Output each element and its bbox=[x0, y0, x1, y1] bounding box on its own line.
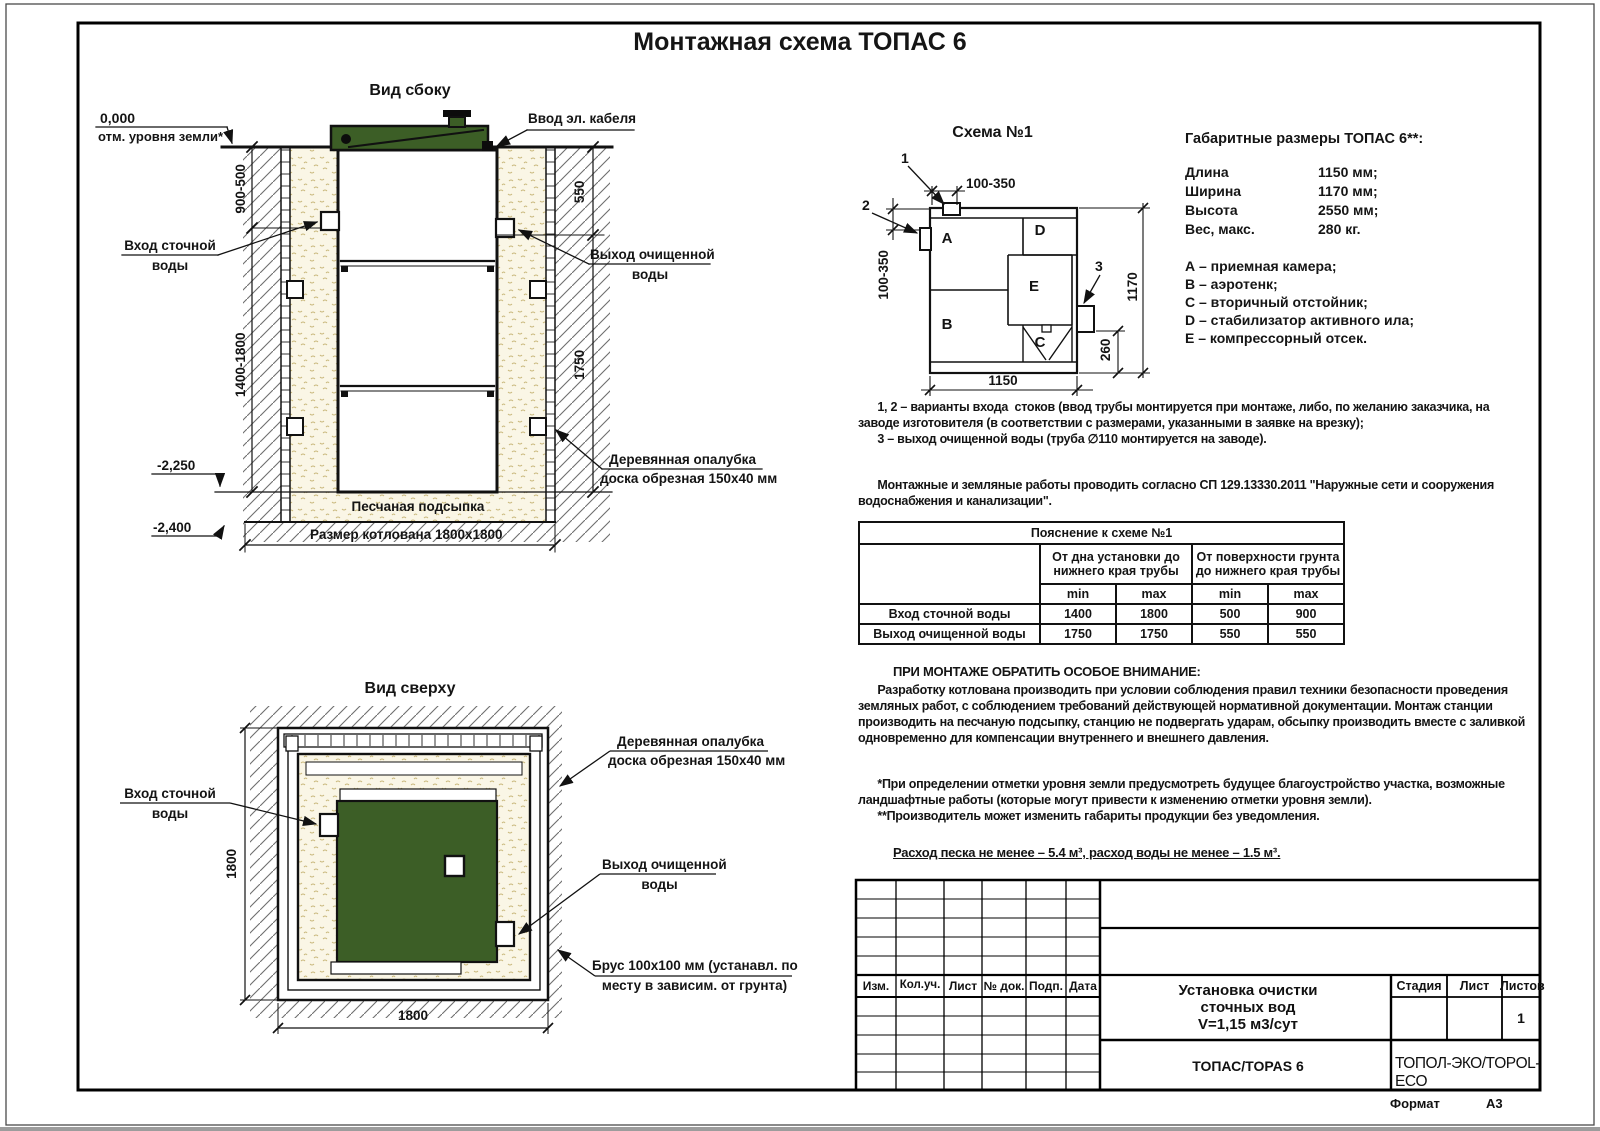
table-group2-header: От поверхности грунта до нижнего края тр… bbox=[1192, 544, 1344, 584]
attention-body: Разработку котлована производить при усл… bbox=[858, 682, 1525, 746]
compartment-c: C bbox=[1030, 334, 1050, 351]
scheme-dim-right: 1170 bbox=[1125, 257, 1141, 317]
side-view-title: Вид сбоку bbox=[330, 82, 490, 101]
table-min-header: min bbox=[1040, 584, 1116, 604]
row-label: Выход очищенной воды bbox=[859, 624, 1040, 644]
table-corner-cell bbox=[859, 544, 1040, 604]
dim-1800-bottom: 1800 bbox=[383, 1008, 443, 1024]
scheme-dim-top: 100-350 bbox=[966, 176, 1016, 192]
vent-stem-icon bbox=[449, 117, 465, 127]
row-value: 550 bbox=[1268, 624, 1344, 644]
pit-size-label: Размер котлована 1800х1800 bbox=[310, 527, 490, 543]
lid-edge-strip bbox=[340, 789, 496, 801]
formwork-label-line2: доска обрезная 150х40 мм bbox=[600, 471, 765, 487]
dim-depth-top: 900-500 bbox=[233, 154, 249, 224]
legend-item: В – аэротенк; bbox=[1185, 276, 1278, 292]
compartment-a: A bbox=[937, 230, 957, 247]
tb-project-name: Установка очистки сточных вод V=1,15 м3/… bbox=[1105, 982, 1391, 1033]
tb-col-ndok: № док. bbox=[982, 979, 1026, 993]
row-value: 900 bbox=[1268, 604, 1344, 624]
dim-550: 550 bbox=[572, 162, 588, 222]
inlet-nozzle bbox=[321, 212, 339, 230]
scheme-outlet-stub-3 bbox=[1077, 306, 1094, 332]
tb-stage-header: Стадия bbox=[1391, 979, 1447, 993]
dim-depth-bottom: 1400-1800 bbox=[233, 322, 249, 408]
inlet-nozzle bbox=[320, 814, 338, 836]
tb-col-podp: Подп. bbox=[1026, 979, 1066, 993]
tank-lid-top bbox=[337, 801, 497, 962]
scheme-title: Схема №1 bbox=[925, 124, 1060, 143]
tb-sheet-header: Лист bbox=[1447, 979, 1502, 993]
dim-1800-left: 1800 bbox=[224, 834, 240, 894]
spec-label: Вес, макс. bbox=[1185, 221, 1318, 240]
row-value: 1750 bbox=[1116, 624, 1192, 644]
drawing-sheet: Монтажная схема ТОПАС 6 Вид сбоку 0,000 … bbox=[0, 0, 1600, 1131]
spec-row: Высота2550 мм; bbox=[1185, 202, 1378, 221]
level-zero-mark: 0,000 bbox=[100, 110, 135, 126]
format-label: Формат bbox=[1390, 1096, 1440, 1111]
outlet-nozzle bbox=[496, 922, 514, 946]
lid-hatch-square bbox=[445, 856, 464, 876]
legend-item: А – приемная камера; bbox=[1185, 258, 1336, 274]
tank-body bbox=[338, 150, 497, 492]
scheme-dim-260: 260 bbox=[1098, 325, 1114, 375]
tb-sheets-value: 1 bbox=[1502, 1010, 1540, 1026]
top-view-title: Вид сверху bbox=[330, 680, 490, 699]
scheme-marker-1: 1 bbox=[901, 150, 909, 166]
page-title: Монтажная схема ТОПАС 6 bbox=[400, 28, 1200, 57]
table-max-header: max bbox=[1116, 584, 1192, 604]
spec-row: Ширина1170 мм; bbox=[1185, 183, 1378, 202]
level-2400-mark: -2,400 bbox=[153, 520, 191, 536]
cable-entry-label: Ввод эл. кабеля bbox=[528, 111, 634, 127]
scheme-marker-3: 3 bbox=[1095, 258, 1103, 274]
specs-heading: Габаритные размеры ТОПАС 6**: bbox=[1185, 131, 1423, 148]
legend-item: Е – компрессорный отсек. bbox=[1185, 330, 1367, 346]
format-value: А3 bbox=[1486, 1096, 1503, 1111]
spec-row: Длина1150 мм; bbox=[1185, 164, 1378, 183]
table-title: Пояснение к схеме №1 bbox=[859, 522, 1344, 544]
consumption-note: Расход песка не менее – 5.4 м³, расход в… bbox=[893, 845, 1280, 861]
compartment-b: B bbox=[937, 316, 957, 333]
row-value: 1750 bbox=[1040, 624, 1116, 644]
inlet-label-line1: Вход сточной bbox=[122, 238, 218, 254]
scheme-explanation-table: Пояснение к схеме №1 От дна установки до… bbox=[858, 521, 1345, 645]
attention-title: ПРИ МОНТАЖЕ ОБРАТИТЬ ОСОБОЕ ВНИМАНИЕ: bbox=[893, 664, 1201, 680]
inlet-label-line1: Вход сточной bbox=[122, 786, 218, 802]
row-value: 550 bbox=[1192, 624, 1268, 644]
formwork-label-line1: Деревянная опалубка bbox=[608, 734, 773, 750]
table-group1-header: От дна установки до нижнего края трубы bbox=[1040, 544, 1192, 584]
spec-value: 2550 мм; bbox=[1318, 202, 1378, 221]
dim-1750: 1750 bbox=[572, 335, 588, 395]
outlet-label-line2: воды bbox=[602, 877, 717, 893]
outlet-label-line2: воды bbox=[590, 267, 710, 283]
spec-value: 1170 мм; bbox=[1318, 183, 1378, 202]
formwork-label-line1: Деревянная опалубка bbox=[600, 452, 765, 468]
top-plank-band bbox=[306, 762, 522, 775]
lid-edge-strip-bottom bbox=[331, 962, 461, 974]
level-zero-note: отм. уровня земли* bbox=[98, 129, 223, 144]
tb-col-izm: Изм. bbox=[856, 979, 896, 993]
row-value: 1400 bbox=[1040, 604, 1116, 624]
row-value: 1800 bbox=[1116, 604, 1192, 624]
footnotes: *При определении отметки уровня земли пр… bbox=[858, 776, 1505, 824]
spec-row: Вес, макс.280 кг. bbox=[1185, 221, 1378, 240]
vent-cap-icon bbox=[443, 110, 471, 117]
table-row: Вход сточной воды 1400 1800 500 900 bbox=[859, 604, 1344, 624]
specs-list: Длина1150 мм; Ширина1170 мм; Высота2550 … bbox=[1185, 164, 1378, 240]
tb-col-data: Дата bbox=[1066, 979, 1100, 993]
tank-lid bbox=[331, 110, 493, 151]
row-label: Вход сточной воды bbox=[859, 604, 1040, 624]
outlet-nozzle bbox=[496, 219, 514, 237]
pipe-variant-notes: 1, 2 – варианты входа стоков (ввод трубы… bbox=[858, 399, 1489, 447]
sp-standard-note: Монтажные и земляные работы проводить со… bbox=[858, 477, 1494, 509]
sand-bedding-label: Песчаная подсыпка bbox=[338, 499, 498, 515]
legend-item: С – вторичный отстойник; bbox=[1185, 294, 1368, 310]
spec-label: Высота bbox=[1185, 202, 1318, 221]
compartment-e: E bbox=[1024, 278, 1044, 295]
compartment-d: D bbox=[1030, 222, 1050, 239]
outlet-label-line1: Выход очищенной bbox=[602, 857, 717, 873]
cable-entry-point bbox=[482, 141, 493, 151]
spec-value: 1150 мм; bbox=[1318, 164, 1378, 183]
formwork-label-line2: доска обрезная 150х40 мм bbox=[608, 753, 773, 769]
tb-sheets-header: Листов bbox=[1500, 979, 1540, 993]
scheme-dim-left: 100-350 bbox=[876, 240, 892, 310]
scheme-marker-2: 2 bbox=[862, 197, 870, 213]
outlet-label-line1: Выход очищенной bbox=[590, 247, 710, 263]
tb-col-list: Лист bbox=[944, 979, 982, 993]
table-min-header: min bbox=[1192, 584, 1268, 604]
tb-col-koluch: Кол.уч. bbox=[896, 979, 944, 991]
spec-label: Длина bbox=[1185, 164, 1318, 183]
tb-company-name: ТОПОЛ-ЭКО/TOPOL-ECO bbox=[1395, 1055, 1540, 1091]
inlet-label-line2: воды bbox=[122, 258, 218, 274]
row-value: 500 bbox=[1192, 604, 1268, 624]
tb-model-name: ТОПАС/TOPAS 6 bbox=[1105, 1058, 1391, 1074]
spec-label: Ширина bbox=[1185, 183, 1318, 202]
table-row: Выход очищенной воды 1750 1750 550 550 bbox=[859, 624, 1344, 644]
table-max-header: max bbox=[1268, 584, 1344, 604]
inlet-label-line2: воды bbox=[122, 806, 218, 822]
level-2250-mark: -2,250 bbox=[157, 458, 195, 474]
brus-label-line2: месту в зависим. от грунта) bbox=[592, 978, 797, 994]
scheme-inlet-stub-2 bbox=[920, 228, 931, 250]
scheme-dim-bottom: 1150 bbox=[975, 373, 1031, 389]
spec-value: 280 кг. bbox=[1318, 221, 1361, 240]
legend-item: D – стабилизатор активного ила; bbox=[1185, 312, 1414, 328]
brus-label-line1: Брус 100х100 мм (устанавл. по bbox=[592, 958, 797, 974]
